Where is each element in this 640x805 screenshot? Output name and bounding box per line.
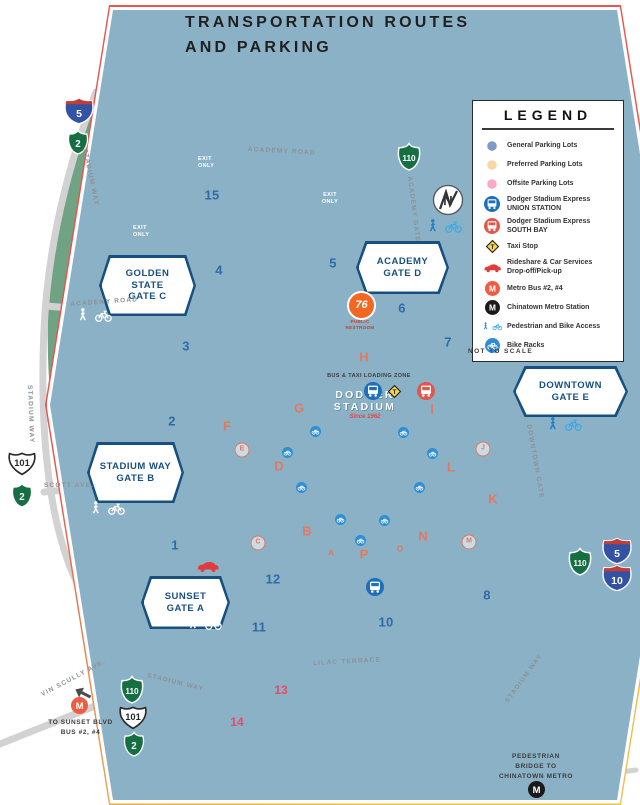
legend-item-general-parking: General Parking Lots [482,138,614,153]
general-lot-7: 7 [444,335,452,350]
bike-racks-icon [427,446,438,464]
svg-text:M: M [489,283,496,293]
legend-item-chinatown-metro: M Chinatown Metro Station [482,300,614,315]
ca-110-shield: 110 [565,547,595,581]
bike-racks-icon [379,513,390,531]
bike-racks-icon [335,512,346,530]
pedestrian-bike-icon [548,416,582,436]
svg-text:10: 10 [611,575,623,587]
circled-gate-j: J [476,442,491,457]
taxi-stop-icon: T [485,239,500,254]
bus-union-station-icon [364,382,382,405]
svg-text:5: 5 [614,548,620,560]
legend-item-express-union: Dodger Stadium ExpressUNION STATION [482,195,614,213]
general-lot-12: 12 [265,572,280,587]
not-to-scale-note: NOT TO SCALE [468,348,533,355]
preferred-lot-n: N [418,529,427,544]
svg-text:M: M [489,302,496,312]
legend-item-rideshare: Rideshare & Car ServicesDrop-off/Pick-up [482,258,614,276]
road-label-scott-ave: SCOTT AVE. [44,482,94,489]
svg-text:T: T [393,389,397,396]
general-lot-3: 3 [182,339,190,354]
pedestrian-bike-icon [188,615,222,635]
general-lot-11: 11 [252,620,266,635]
exit-only-label: EXIT ONLY [318,192,342,206]
ca-110-shield: 110 [394,142,426,176]
preferred-lot-l: L [447,460,455,475]
general-lot-2: 2 [168,414,176,429]
ca-2-shield: 2 [10,482,34,513]
general-lot-8: 8 [483,588,491,603]
general-lot-15: 15 [204,188,219,203]
pedestrian-bike-icon [428,218,462,238]
page-title-line2: AND PARKING [185,36,470,61]
offsite-lot-14: 14 [230,715,243,729]
legend-panel: LEGEND General Parking Lots Preferred Pa… [472,100,624,362]
pedestrian-bike-icon [91,500,125,520]
bus-union-station-icon [484,196,500,212]
general-parking-dot [485,139,499,153]
pedestrian-bike-icon [483,321,502,331]
circled-gate-e: E [235,443,250,458]
interstate-10-shield: 10 [602,563,632,596]
legend-item-offsite-parking: Offsite Parking Lots [482,176,614,191]
preferred-lot-k: K [488,492,497,507]
transportation-map-page: TOP OF THE PARK OFFICIAL TEAM STORE [0,0,640,800]
page-title-line1: TRANSPORTATION ROUTES [185,11,470,36]
bus-union-station-icon [366,578,384,601]
svg-text:110: 110 [402,154,416,163]
pedestrian-bike-icon [78,307,112,327]
preferred-lot-h: H [359,350,368,365]
circled-gate-m: M [462,535,477,550]
bus-taxi-zone-label: BUS & TAXI LOADING ZONE [310,373,428,379]
general-lot-1: 1 [171,538,179,553]
legend-item-ped-bike: Pedestrian and Bike Access [482,319,614,334]
compass-icon: N [432,184,464,216]
general-lot-10: 10 [378,615,393,630]
preferred-lot-f: F [223,419,231,434]
svg-text:110: 110 [125,687,139,696]
svg-text:M: M [533,785,541,796]
bike-racks-icon [355,533,366,551]
us-101-shield: 101 [6,450,38,482]
svg-text:2: 2 [131,741,136,752]
gate-c-badge: GOLDEN STATEGATE C [99,255,196,316]
pedestrian-bridge-note: PEDESTRIAN BRIDGE TO CHINATOWN METRO [476,752,596,781]
offsite-parking-dot [485,177,499,191]
legend-title: LEGEND [482,101,614,130]
legend-item-taxi: T Taxi Stop [482,239,614,254]
bike-racks-icon [296,480,307,498]
page-title: TRANSPORTATION ROUTES AND PARKING [185,11,470,61]
bus-south-bay-icon [484,218,500,234]
exit-only-label: EXIT ONLY [133,225,157,239]
public-restroom-label: PUBLIC RESTROOM [338,319,382,330]
svg-text:101: 101 [14,458,30,468]
bus-south-bay-icon [417,382,435,405]
offsite-lot-13: 13 [274,683,287,697]
preferred-lot-g: G [294,401,304,416]
preferred-lot-b: B [302,524,311,539]
metro-bus-icon: M [485,281,500,296]
taxi-stop-icon: T [387,384,402,404]
legend-item-preferred-parking: Preferred Parking Lots [482,157,614,172]
svg-text:T: T [490,244,494,251]
preferred-lot-o: O [397,545,403,554]
svg-text:N: N [443,193,452,208]
circled-gate-c: C [251,536,266,551]
bike-racks-icon [414,480,425,498]
rideshare-car-icon [483,261,502,274]
gate-e-badge: DOWNTOWNGATE E [513,366,628,417]
gate-b-badge: STADIUM WAYGATE B [87,442,184,503]
chinatown-metro-icon: M [485,300,500,315]
svg-text:5: 5 [76,108,82,120]
exit-only-label: EXIT ONLY [198,156,222,170]
interstate-5-shield: 5 [64,96,94,129]
legend-item-metro-bus: M Metro Bus #2, #4 [482,281,614,296]
bike-racks-icon [310,424,321,442]
svg-text:2: 2 [75,139,80,150]
preferred-lot-a: A [328,549,334,558]
preferred-parking-dot [485,158,499,172]
svg-text:110: 110 [573,559,587,568]
general-lot-6: 6 [398,301,406,316]
legend-item-express-southbay: Dodger Stadium ExpressSOUTH BAY [482,217,614,235]
bike-racks-icon [398,425,409,443]
rideshare-car-icon [196,558,220,579]
general-lot-4: 4 [215,263,223,278]
metro-bus-icon: M [71,697,88,719]
bike-racks-icon [282,445,293,463]
general-lot-5: 5 [329,256,337,271]
gate-d-badge: ACADEMYGATE D [356,241,449,294]
svg-text:2: 2 [19,492,24,503]
logo-tagline: Since 1962 [334,414,396,421]
76-gas-station-icon: 76 [347,291,376,320]
to-sunset-note: TO SUNSET BLVD BUS #2, #4 [28,718,133,738]
svg-text:M: M [76,701,84,712]
